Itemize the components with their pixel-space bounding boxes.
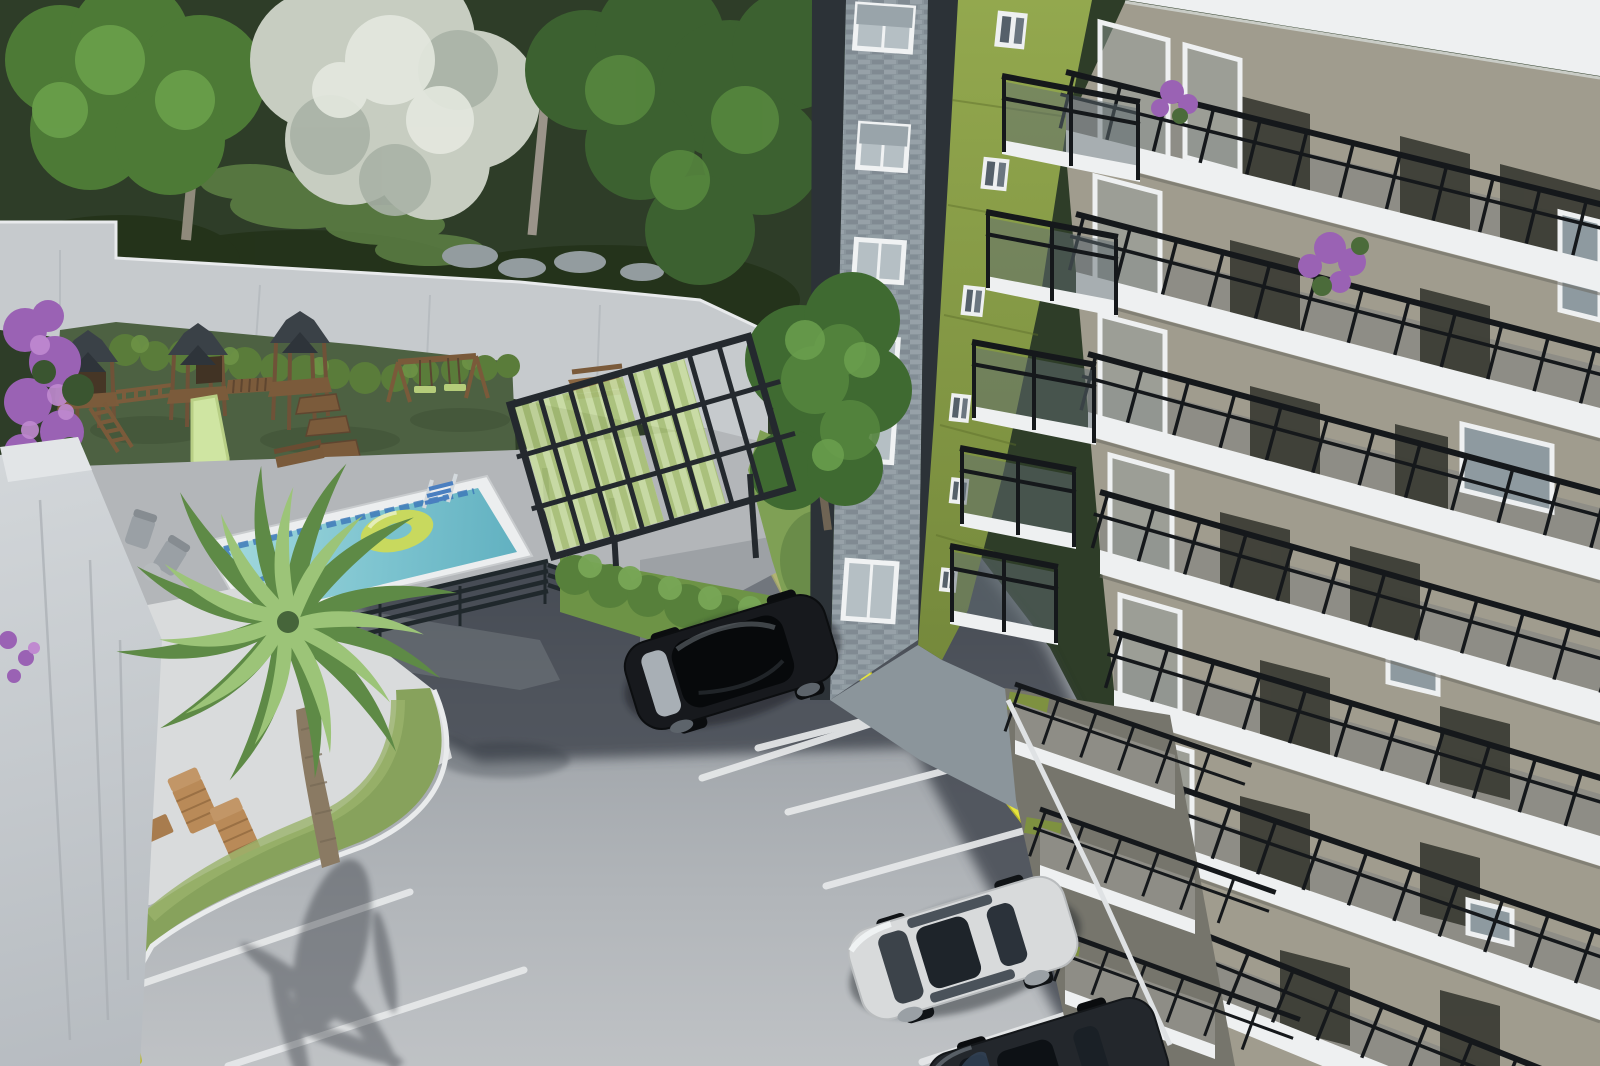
aerial-render (0, 0, 1600, 1066)
swing-seat (444, 384, 466, 391)
palm-crown (277, 611, 299, 633)
rendering-canvas (0, 0, 1600, 1066)
swing-seat (414, 386, 436, 393)
